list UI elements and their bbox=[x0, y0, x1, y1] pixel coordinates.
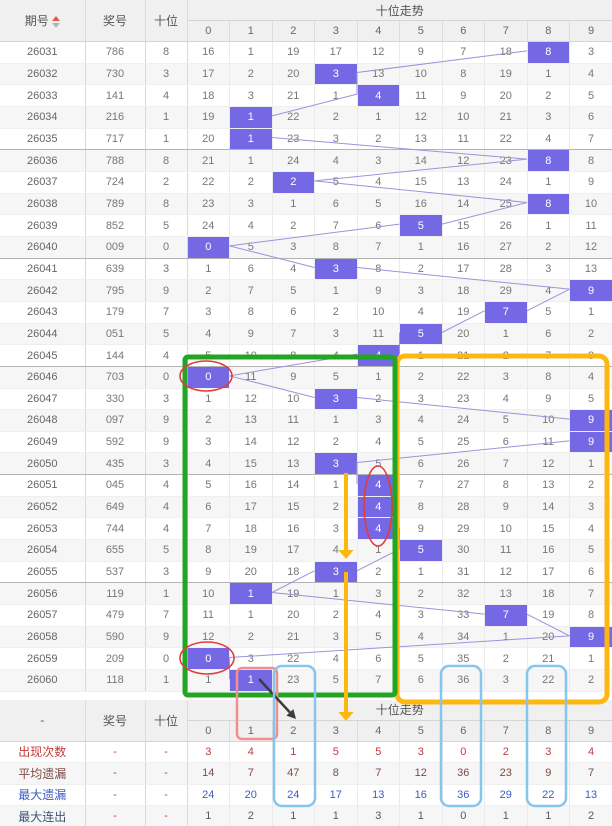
summary-prize-cell: - bbox=[85, 806, 145, 826]
miss-cell: 19 bbox=[272, 583, 315, 605]
table-row: 2604163931643821728313 bbox=[0, 258, 612, 280]
prize-cell: 788 bbox=[85, 150, 145, 172]
summary-value-cell: 1 bbox=[272, 806, 315, 826]
issue-cell: 26055 bbox=[0, 561, 85, 583]
tens-cell: 9 bbox=[145, 410, 187, 432]
tens-cell: 3 bbox=[145, 453, 187, 475]
miss-cell: 8 bbox=[187, 540, 230, 562]
miss-cell: 21 bbox=[442, 345, 485, 367]
miss-cell: 11 bbox=[442, 128, 485, 150]
tens-cell: 9 bbox=[145, 280, 187, 302]
trend-col-header-9: 9 bbox=[570, 720, 612, 741]
tens-cell: 7 bbox=[145, 605, 187, 627]
miss-cell: 13 bbox=[357, 63, 400, 85]
issue-cell: 26057 bbox=[0, 605, 85, 627]
table-row: 260387898233165161425810 bbox=[0, 193, 612, 215]
hit-cell: 3 bbox=[315, 388, 358, 410]
summary-value-cell: 13 bbox=[570, 784, 612, 806]
miss-cell: 26 bbox=[485, 215, 528, 237]
prize-cell: 009 bbox=[85, 236, 145, 258]
table-row: 26057479711120243337198 bbox=[0, 605, 612, 627]
miss-cell: 5 bbox=[527, 301, 570, 323]
issue-cell: 26033 bbox=[0, 85, 85, 107]
miss-cell: 2 bbox=[357, 388, 400, 410]
sort-asc-icon[interactable] bbox=[52, 16, 60, 21]
prize-cell: 045 bbox=[85, 475, 145, 497]
miss-cell: 23 bbox=[442, 388, 485, 410]
summary-value-cell: 17 bbox=[315, 784, 358, 806]
summary-row: 最大连出--1211310112 bbox=[0, 806, 612, 826]
issue-cell: 26039 bbox=[0, 215, 85, 237]
miss-cell: 5 bbox=[272, 280, 315, 302]
miss-cell: 16 bbox=[230, 475, 273, 497]
miss-cell: 18 bbox=[230, 518, 273, 540]
summary-value-cell: 5 bbox=[315, 741, 358, 763]
miss-cell: 22 bbox=[442, 366, 485, 388]
hit-cell: 4 bbox=[357, 518, 400, 540]
prize-cell: 435 bbox=[85, 453, 145, 475]
miss-cell: 18 bbox=[485, 42, 528, 64]
miss-cell: 2 bbox=[357, 561, 400, 583]
miss-cell: 28 bbox=[485, 258, 528, 280]
miss-cell: 3 bbox=[272, 236, 315, 258]
summary-value-cell: 24 bbox=[187, 784, 230, 806]
miss-cell: 3 bbox=[400, 388, 443, 410]
summary-tens-header: 十位 bbox=[145, 700, 187, 742]
miss-cell: 31 bbox=[442, 561, 485, 583]
miss-cell: 27 bbox=[485, 236, 528, 258]
miss-cell: 7 bbox=[570, 128, 612, 150]
miss-cell: 22 bbox=[272, 106, 315, 128]
miss-cell: 2 bbox=[230, 63, 273, 85]
table-row: 260342161191222112102136 bbox=[0, 106, 612, 128]
summary-value-cell: 3 bbox=[187, 741, 230, 763]
miss-cell: 3 bbox=[315, 626, 358, 648]
miss-cell: 11 bbox=[527, 431, 570, 453]
miss-cell: 9 bbox=[357, 280, 400, 302]
miss-cell: 21 bbox=[485, 106, 528, 128]
miss-cell: 4 bbox=[315, 150, 358, 172]
miss-cell: 5 bbox=[570, 388, 612, 410]
tens-cell: 0 bbox=[145, 236, 187, 258]
miss-cell: 10 bbox=[485, 518, 528, 540]
summary-tens-cell: - bbox=[145, 763, 187, 785]
miss-cell: 6 bbox=[400, 670, 443, 692]
miss-cell: 34 bbox=[442, 626, 485, 648]
issue-cell: 26047 bbox=[0, 388, 85, 410]
miss-cell: 14 bbox=[442, 193, 485, 215]
miss-cell: 4 bbox=[272, 258, 315, 280]
hit-cell: 2 bbox=[272, 171, 315, 193]
miss-cell: 10 bbox=[527, 410, 570, 432]
hit-cell: 0 bbox=[187, 366, 230, 388]
miss-cell: 7 bbox=[357, 670, 400, 692]
miss-cell: 3 bbox=[570, 345, 612, 367]
miss-cell: 6 bbox=[570, 106, 612, 128]
miss-cell: 1 bbox=[400, 236, 443, 258]
hit-cell: 0 bbox=[187, 236, 230, 258]
tens-cell: 7 bbox=[145, 301, 187, 323]
miss-cell: 12 bbox=[230, 388, 273, 410]
table-row: 26033141418321141192025 bbox=[0, 85, 612, 107]
miss-cell: 6 bbox=[570, 561, 612, 583]
hit-cell: 4 bbox=[357, 496, 400, 518]
hit-cell: 1 bbox=[230, 670, 273, 692]
summary-value-cell: 2 bbox=[485, 741, 528, 763]
miss-cell: 13 bbox=[230, 410, 273, 432]
summary-value-cell: 1 bbox=[315, 806, 358, 826]
summary-tens-cell: - bbox=[145, 806, 187, 826]
miss-cell: 7 bbox=[570, 583, 612, 605]
miss-cell: 11 bbox=[230, 366, 273, 388]
miss-cell: 16 bbox=[442, 236, 485, 258]
summary-row-label: 最大连出 bbox=[0, 806, 85, 826]
miss-cell: 1 bbox=[315, 475, 358, 497]
miss-cell: 2 bbox=[527, 85, 570, 107]
hit-cell: 3 bbox=[315, 258, 358, 280]
hit-cell: 3 bbox=[315, 63, 358, 85]
miss-cell: 19 bbox=[485, 63, 528, 85]
miss-cell: 3 bbox=[570, 42, 612, 64]
miss-cell: 4 bbox=[230, 215, 273, 237]
prize-cell: 703 bbox=[85, 366, 145, 388]
hit-cell: 4 bbox=[357, 345, 400, 367]
summary-value-cell: 13 bbox=[357, 784, 400, 806]
sort-icon[interactable] bbox=[52, 16, 60, 28]
miss-cell: 1 bbox=[485, 323, 528, 345]
summary-prize-header: 奖号 bbox=[85, 700, 145, 742]
trend-col-header-2: 2 bbox=[272, 21, 315, 42]
miss-cell: 3 bbox=[357, 410, 400, 432]
tens-cell: 5 bbox=[145, 323, 187, 345]
summary-value-cell: 3 bbox=[357, 806, 400, 826]
miss-cell: 1 bbox=[230, 42, 273, 64]
miss-cell: 6 bbox=[187, 496, 230, 518]
prize-cell: 730 bbox=[85, 63, 145, 85]
miss-cell: 1 bbox=[527, 63, 570, 85]
miss-cell: 6 bbox=[315, 193, 358, 215]
miss-cell: 4 bbox=[527, 280, 570, 302]
miss-cell: 5 bbox=[187, 475, 230, 497]
tens-cell: 1 bbox=[145, 583, 187, 605]
summary-value-cell: 4 bbox=[570, 741, 612, 763]
table-row: 26048097921311134245109 bbox=[0, 410, 612, 432]
miss-cell: 1 bbox=[315, 85, 358, 107]
summary-value-cell: 0 bbox=[442, 741, 485, 763]
tens-cell: 8 bbox=[145, 193, 187, 215]
prize-column-header: 奖号 bbox=[85, 0, 145, 42]
miss-cell: 21 bbox=[527, 648, 570, 670]
trend-col-header-6: 6 bbox=[442, 21, 485, 42]
miss-cell: 3 bbox=[315, 323, 358, 345]
tens-cell: 8 bbox=[145, 42, 187, 64]
trend-col-header-8: 8 bbox=[527, 720, 570, 741]
summary-row-label: 最大遗漏 bbox=[0, 784, 85, 806]
miss-cell: 23 bbox=[272, 670, 315, 692]
miss-cell: 3 bbox=[187, 431, 230, 453]
table-row: 2605920900322465352211 bbox=[0, 648, 612, 670]
miss-cell: 1 bbox=[230, 150, 273, 172]
miss-cell: 1 bbox=[357, 540, 400, 562]
issue-cell: 26051 bbox=[0, 475, 85, 497]
miss-cell: 5 bbox=[315, 670, 358, 692]
table-row: 2606011811123576363222 bbox=[0, 670, 612, 692]
miss-cell: 11 bbox=[570, 215, 612, 237]
hit-cell: 9 bbox=[570, 431, 612, 453]
prize-cell: 097 bbox=[85, 410, 145, 432]
hit-cell: 5 bbox=[400, 215, 443, 237]
miss-cell: 1 bbox=[527, 171, 570, 193]
hit-cell: 1 bbox=[230, 128, 273, 150]
summary-value-cell: 7 bbox=[357, 763, 400, 785]
summary-value-cell: 0 bbox=[442, 806, 485, 826]
table-row: 26049592931412245256119 bbox=[0, 431, 612, 453]
miss-cell: 2 bbox=[230, 171, 273, 193]
prize-cell: 592 bbox=[85, 431, 145, 453]
miss-cell: 7 bbox=[187, 518, 230, 540]
miss-cell: 4 bbox=[570, 518, 612, 540]
trend-col-header-6: 6 bbox=[442, 720, 485, 741]
miss-cell: 11 bbox=[485, 540, 528, 562]
table-row: 26037724222225415132419 bbox=[0, 171, 612, 193]
miss-cell: 2 bbox=[315, 301, 358, 323]
miss-cell: 21 bbox=[272, 85, 315, 107]
trend-chart-page: 期号 奖号 十位 十位走势 0123456789 260317868161191… bbox=[0, 0, 612, 826]
trend-col-header-3: 3 bbox=[315, 21, 358, 42]
hit-cell: 5 bbox=[400, 540, 443, 562]
miss-cell: 22 bbox=[485, 128, 528, 150]
issue-column-header[interactable]: 期号 bbox=[0, 0, 85, 42]
summary-value-cell: 14 bbox=[187, 763, 230, 785]
miss-cell: 18 bbox=[187, 85, 230, 107]
miss-cell: 19 bbox=[442, 301, 485, 323]
miss-cell: 5 bbox=[400, 431, 443, 453]
miss-cell: 19 bbox=[272, 42, 315, 64]
miss-cell: 1 bbox=[187, 388, 230, 410]
miss-cell: 8 bbox=[485, 475, 528, 497]
summary-prize-cell: - bbox=[85, 763, 145, 785]
miss-cell: 4 bbox=[400, 626, 443, 648]
summary-value-cell: 4 bbox=[230, 741, 273, 763]
miss-cell: 1 bbox=[485, 626, 528, 648]
miss-cell: 2 bbox=[315, 496, 358, 518]
miss-cell: 1 bbox=[400, 561, 443, 583]
issue-cell: 26050 bbox=[0, 453, 85, 475]
sort-desc-icon[interactable] bbox=[52, 23, 60, 28]
summary-table: - 奖号 十位 十位走势 0123456789 出现次数--3415530234… bbox=[0, 700, 612, 826]
miss-cell: 7 bbox=[485, 453, 528, 475]
issue-cell: 26048 bbox=[0, 410, 85, 432]
summary-value-cell: 23 bbox=[485, 763, 528, 785]
miss-cell: 9 bbox=[400, 42, 443, 64]
section-gap bbox=[0, 692, 612, 700]
miss-cell: 3 bbox=[485, 670, 528, 692]
miss-cell: 1 bbox=[570, 648, 612, 670]
hit-cell: 0 bbox=[187, 648, 230, 670]
miss-cell: 15 bbox=[400, 171, 443, 193]
summary-value-cell: 36 bbox=[442, 763, 485, 785]
table-row: 26052649461715248289143 bbox=[0, 496, 612, 518]
miss-cell: 15 bbox=[442, 215, 485, 237]
summary-value-cell: 1 bbox=[400, 806, 443, 826]
miss-cell: 7 bbox=[230, 280, 273, 302]
miss-cell: 12 bbox=[527, 453, 570, 475]
miss-cell: 2 bbox=[400, 258, 443, 280]
prize-cell: 786 bbox=[85, 42, 145, 64]
tens-cell: 5 bbox=[145, 215, 187, 237]
tens-cell: 0 bbox=[145, 648, 187, 670]
trend-col-header-5: 5 bbox=[400, 21, 443, 42]
table-row: 26051045451614147278132 bbox=[0, 475, 612, 497]
issue-cell: 26046 bbox=[0, 366, 85, 388]
miss-cell: 22 bbox=[187, 171, 230, 193]
miss-cell: 11 bbox=[272, 410, 315, 432]
summary-row: 平均遗漏--147478712362397 bbox=[0, 763, 612, 785]
hit-cell: 8 bbox=[527, 150, 570, 172]
table-row: 260561191101191323213187 bbox=[0, 583, 612, 605]
hit-cell: 8 bbox=[527, 42, 570, 64]
miss-cell: 3 bbox=[230, 648, 273, 670]
miss-cell: 15 bbox=[527, 518, 570, 540]
miss-cell: 2 bbox=[527, 236, 570, 258]
issue-cell: 26040 bbox=[0, 236, 85, 258]
miss-cell: 35 bbox=[442, 648, 485, 670]
miss-cell: 11 bbox=[400, 85, 443, 107]
summary-value-cell: 1 bbox=[272, 741, 315, 763]
miss-cell: 4 bbox=[187, 323, 230, 345]
prize-cell: 852 bbox=[85, 215, 145, 237]
miss-cell: 13 bbox=[442, 171, 485, 193]
miss-cell: 8 bbox=[230, 301, 273, 323]
miss-cell: 22 bbox=[272, 648, 315, 670]
miss-cell: 9 bbox=[272, 366, 315, 388]
tens-cell: 1 bbox=[145, 106, 187, 128]
miss-cell: 2 bbox=[400, 366, 443, 388]
prize-cell: 590 bbox=[85, 626, 145, 648]
miss-cell: 30 bbox=[442, 540, 485, 562]
miss-cell: 3 bbox=[485, 366, 528, 388]
trend-col-header-3: 3 bbox=[315, 720, 358, 741]
miss-cell: 1 bbox=[357, 366, 400, 388]
summary-value-cell: 1 bbox=[485, 806, 528, 826]
table-row: 26050435341513356267121 bbox=[0, 453, 612, 475]
miss-cell: 3 bbox=[527, 106, 570, 128]
miss-cell: 29 bbox=[485, 280, 528, 302]
miss-cell: 16 bbox=[187, 42, 230, 64]
miss-cell: 2 bbox=[485, 345, 528, 367]
miss-cell: 5 bbox=[357, 626, 400, 648]
miss-cell: 36 bbox=[442, 670, 485, 692]
miss-cell: 13 bbox=[527, 475, 570, 497]
miss-cell: 6 bbox=[485, 431, 528, 453]
miss-cell: 7 bbox=[272, 323, 315, 345]
miss-cell: 1 bbox=[570, 301, 612, 323]
summary-value-cell: 3 bbox=[527, 741, 570, 763]
miss-cell: 3 bbox=[187, 301, 230, 323]
prize-cell: 209 bbox=[85, 648, 145, 670]
miss-cell: 2 bbox=[400, 583, 443, 605]
miss-cell: 20 bbox=[187, 128, 230, 150]
miss-cell: 2 bbox=[187, 410, 230, 432]
miss-cell: 6 bbox=[357, 215, 400, 237]
miss-cell: 1 bbox=[315, 280, 358, 302]
miss-cell: 6 bbox=[400, 453, 443, 475]
miss-cell: 18 bbox=[527, 583, 570, 605]
miss-cell: 4 bbox=[527, 128, 570, 150]
miss-cell: 1 bbox=[527, 215, 570, 237]
miss-cell: 4 bbox=[315, 648, 358, 670]
miss-cell: 5 bbox=[230, 236, 273, 258]
miss-cell: 3 bbox=[400, 280, 443, 302]
miss-cell: 6 bbox=[230, 258, 273, 280]
miss-cell: 24 bbox=[272, 150, 315, 172]
miss-cell: 5 bbox=[357, 193, 400, 215]
miss-cell: 8 bbox=[400, 496, 443, 518]
trend-col-header-7: 7 bbox=[485, 21, 528, 42]
miss-cell: 17 bbox=[187, 63, 230, 85]
miss-cell: 4 bbox=[315, 540, 358, 562]
miss-cell: 26 bbox=[442, 453, 485, 475]
summary-prize-cell: - bbox=[85, 784, 145, 806]
miss-cell: 3 bbox=[400, 605, 443, 627]
summary-value-cell: 29 bbox=[485, 784, 528, 806]
summary-trend-group-header: 十位走势 bbox=[187, 700, 612, 721]
miss-cell: 14 bbox=[230, 431, 273, 453]
miss-cell: 7 bbox=[315, 215, 358, 237]
trend-col-header-8: 8 bbox=[527, 21, 570, 42]
miss-cell: 14 bbox=[272, 475, 315, 497]
issue-cell: 26031 bbox=[0, 42, 85, 64]
table-row: 2604733031121032323495 bbox=[0, 388, 612, 410]
trend-table: 期号 奖号 十位 十位走势 0123456789 260317868161191… bbox=[0, 0, 612, 692]
hit-cell: 4 bbox=[357, 475, 400, 497]
miss-cell: 9 bbox=[187, 561, 230, 583]
miss-cell: 14 bbox=[527, 496, 570, 518]
miss-cell: 25 bbox=[442, 431, 485, 453]
miss-cell: 4 bbox=[187, 453, 230, 475]
miss-cell: 5 bbox=[485, 410, 528, 432]
miss-cell: 4 bbox=[570, 366, 612, 388]
miss-cell: 12 bbox=[570, 236, 612, 258]
table-row: 260427959275193182949 bbox=[0, 280, 612, 302]
summary-value-cell: 7 bbox=[230, 763, 273, 785]
summary-issue-header: - bbox=[0, 700, 85, 742]
miss-cell: 12 bbox=[400, 106, 443, 128]
issue-cell: 26052 bbox=[0, 496, 85, 518]
summary-value-cell: 22 bbox=[527, 784, 570, 806]
miss-cell: 8 bbox=[570, 605, 612, 627]
issue-header-label: 期号 bbox=[25, 14, 49, 28]
miss-cell: 6 bbox=[357, 648, 400, 670]
miss-cell: 10 bbox=[230, 345, 273, 367]
prize-cell: 141 bbox=[85, 85, 145, 107]
trend-col-header-4: 4 bbox=[357, 720, 400, 741]
miss-cell: 10 bbox=[187, 583, 230, 605]
trend-col-header-9: 9 bbox=[570, 21, 612, 42]
hit-cell: 4 bbox=[357, 85, 400, 107]
miss-cell: 4 bbox=[400, 410, 443, 432]
summary-value-cell: 16 bbox=[400, 784, 443, 806]
table-row: 260467030011951222384 bbox=[0, 366, 612, 388]
tens-cell: 3 bbox=[145, 561, 187, 583]
miss-cell: 10 bbox=[272, 388, 315, 410]
summary-row-label: 平均遗漏 bbox=[0, 763, 85, 785]
table-row: 26039852524427651526111 bbox=[0, 215, 612, 237]
prize-cell: 655 bbox=[85, 540, 145, 562]
miss-cell: 3 bbox=[357, 583, 400, 605]
trend-col-header-4: 4 bbox=[357, 21, 400, 42]
miss-cell: 20 bbox=[527, 626, 570, 648]
